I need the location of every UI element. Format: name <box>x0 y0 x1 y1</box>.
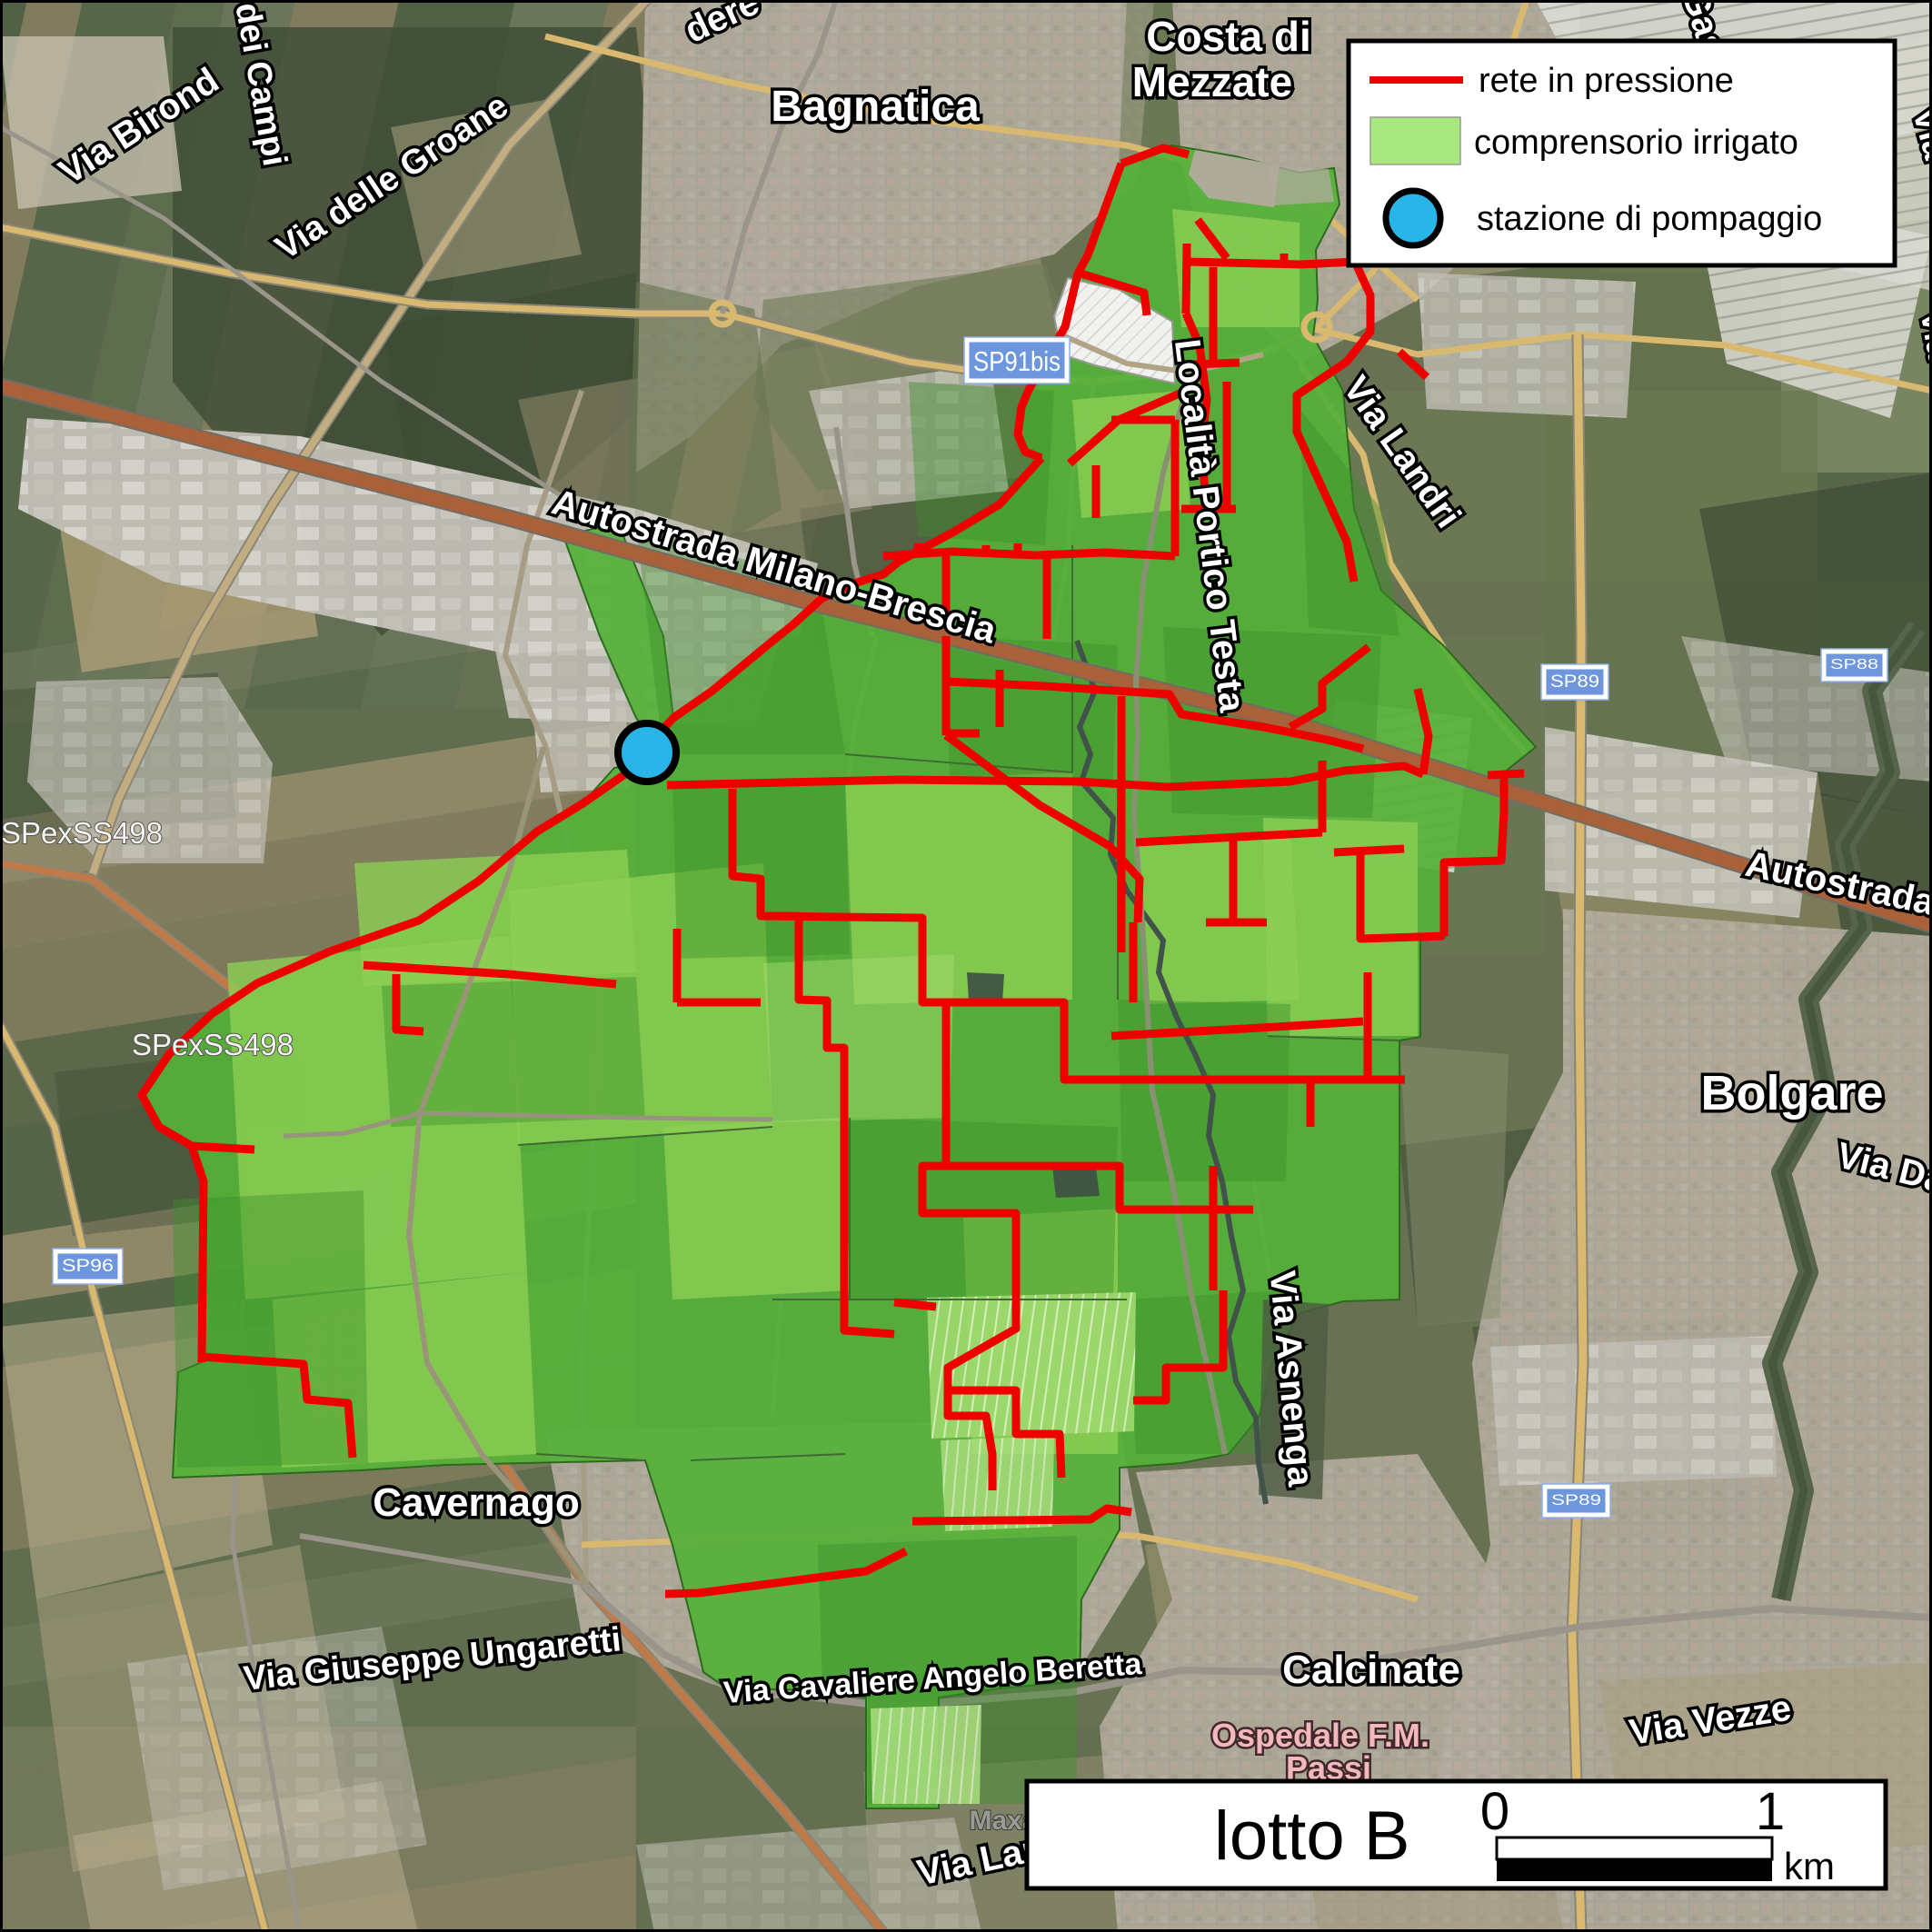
svg-text:0: 0 <box>1480 1782 1509 1841</box>
svg-text:Cavernago: Cavernago <box>373 1480 579 1525</box>
svg-text:SP91bis: SP91bis <box>973 345 1061 377</box>
svg-text:lotto B: lotto B <box>1214 1798 1409 1875</box>
svg-text:SP88: SP88 <box>1830 657 1878 672</box>
svg-text:Calcinate: Calcinate <box>1282 1648 1460 1692</box>
svg-text:SPexSS498: SPexSS498 <box>132 1028 294 1061</box>
svg-text:comprensorio irrigato: comprensorio irrigato <box>1474 124 1798 162</box>
svg-text:Bolgare: Bolgare <box>1700 1066 1883 1120</box>
svg-text:Bagnatica: Bagnatica <box>771 83 980 131</box>
svg-text:Mezzate: Mezzate <box>1132 58 1292 105</box>
svg-text:Ospedale F.M.: Ospedale F.M. <box>1211 1717 1429 1754</box>
svg-text:SPexSS498: SPexSS498 <box>1 816 163 850</box>
svg-text:SP89: SP89 <box>1550 672 1599 692</box>
svg-text:Costa di: Costa di <box>1146 13 1310 60</box>
svg-text:stazione di pompaggio: stazione di pompaggio <box>1477 200 1822 238</box>
svg-text:SP89: SP89 <box>1551 1491 1601 1509</box>
svg-text:km: km <box>1784 1845 1835 1887</box>
svg-text:1: 1 <box>1756 1782 1785 1841</box>
svg-text:rete in pressione: rete in pressione <box>1479 62 1734 100</box>
svg-text:SP96: SP96 <box>62 1257 114 1276</box>
